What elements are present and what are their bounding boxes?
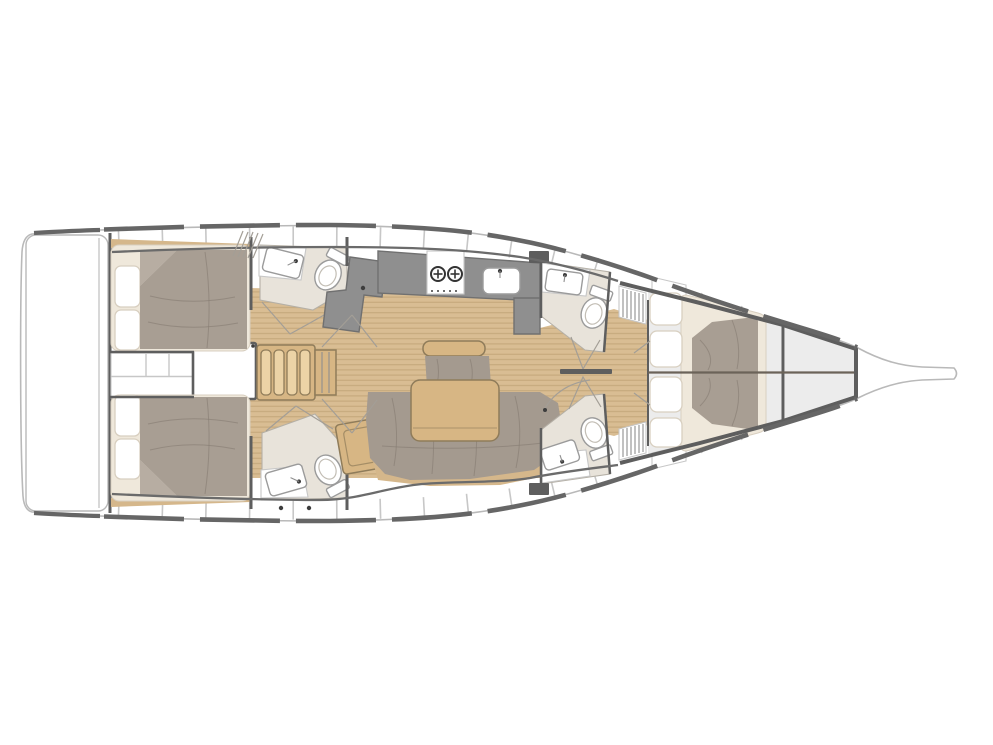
galley-return-counter: [514, 298, 540, 334]
bench-backrest: [423, 341, 485, 356]
aft-cabin-bottom: [110, 395, 251, 509]
pillow: [115, 310, 140, 350]
galley-sink: [483, 268, 520, 294]
pillow: [115, 439, 140, 479]
louvered-locker: [619, 286, 646, 324]
washbasin: [545, 269, 584, 296]
dining-table: [411, 380, 499, 441]
steps-landing: [315, 350, 336, 395]
engine-box-latch: [251, 344, 255, 348]
aft-corridor: [111, 353, 193, 398]
bulkhead-block: [529, 483, 549, 495]
doorway-threshold: [560, 369, 612, 374]
aft-cabin-top: [110, 237, 251, 352]
swim-platform: [26, 235, 108, 511]
pillow: [115, 266, 140, 307]
stove-icon: [427, 251, 464, 294]
locker-latch: [279, 506, 283, 510]
pillow: [650, 377, 682, 412]
yacht-floor-plan: [0, 0, 993, 745]
door-hinge: [543, 408, 547, 412]
pillow: [650, 418, 682, 447]
pillow: [650, 331, 682, 367]
pillow: [115, 395, 140, 436]
locker-latch: [307, 506, 311, 510]
louvered-locker: [619, 422, 646, 460]
yacht-floor-plan-page: [0, 0, 993, 745]
counter-knob: [361, 286, 365, 290]
companionway-steps: [257, 345, 336, 400]
